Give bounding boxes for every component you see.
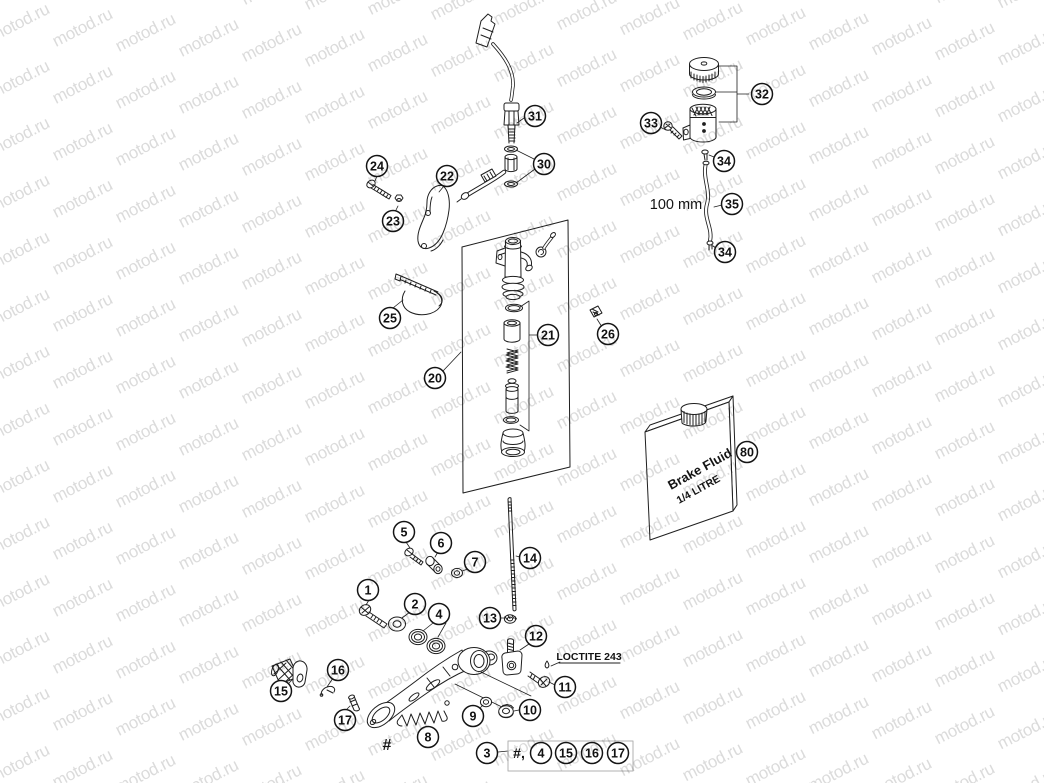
watermark-text: motod.ru bbox=[742, 231, 808, 277]
brake-light-switch-drawing bbox=[457, 14, 519, 202]
watermark-text: motod.ru bbox=[301, 766, 367, 783]
svg-text:32: 32 bbox=[755, 87, 769, 101]
svg-text:26: 26 bbox=[601, 327, 615, 341]
watermark-text: motod.ru bbox=[994, 593, 1044, 639]
watermark-text: motod.ru bbox=[175, 527, 241, 573]
watermark-text: motod.ru bbox=[742, 174, 808, 220]
watermark-text: motod.ru bbox=[994, 137, 1044, 183]
callout-13: 13 bbox=[480, 608, 501, 629]
watermark-text: motod.ru bbox=[301, 139, 367, 185]
watermark-text: motod.ru bbox=[0, 56, 52, 102]
watermark-text: motod.ru bbox=[805, 521, 871, 567]
watermark-text: motod.ru bbox=[175, 299, 241, 345]
watermark-text: motod.ru bbox=[112, 522, 178, 568]
watermark-text: motod.ru bbox=[364, 372, 430, 418]
bolt-nut-drawing bbox=[365, 179, 403, 202]
svg-text:15: 15 bbox=[559, 746, 573, 760]
watermark-text: motod.ru bbox=[616, 335, 682, 381]
watermark-text: motod.ru bbox=[805, 65, 871, 111]
watermark-text: motod.ru bbox=[175, 755, 241, 783]
callout-16: 16 bbox=[328, 660, 349, 681]
callout-34: 34 bbox=[715, 242, 736, 263]
watermark-text: motod.ru bbox=[301, 25, 367, 71]
callout-21: 21 bbox=[538, 325, 559, 346]
watermark-text: motod.ru bbox=[616, 221, 682, 267]
watermark-text: motod.ru bbox=[0, 170, 52, 216]
watermark-text: motod.ru bbox=[238, 247, 304, 293]
watermark-text: motod.ru bbox=[301, 709, 367, 755]
watermark-text: motod.ru bbox=[175, 185, 241, 231]
svg-text:12: 12 bbox=[529, 629, 543, 643]
svg-text:3: 3 bbox=[484, 746, 491, 760]
svg-text:2: 2 bbox=[412, 597, 419, 611]
callout-1: 1 bbox=[358, 580, 379, 601]
svg-text:15: 15 bbox=[274, 684, 288, 698]
watermark-text: motod.ru bbox=[868, 355, 934, 401]
watermark-text: motod.ru bbox=[112, 465, 178, 511]
watermark-text: motod.ru bbox=[868, 0, 934, 2]
watermark-text: motod.ru bbox=[742, 687, 808, 733]
watermark-text: motod.ru bbox=[616, 677, 682, 723]
svg-text:5: 5 bbox=[401, 525, 408, 539]
svg-text:23: 23 bbox=[386, 214, 400, 228]
watermark-text: motod.ru bbox=[49, 403, 115, 449]
watermark-text: motod.ru bbox=[427, 491, 493, 537]
watermark-text: motod.ru bbox=[742, 345, 808, 391]
watermark-text: motod.ru bbox=[805, 635, 871, 681]
callout-30: 30 bbox=[534, 154, 555, 175]
watermark-text: motod.ru bbox=[0, 341, 52, 387]
line-art bbox=[270, 14, 749, 771]
watermark-text: motod.ru bbox=[364, 771, 430, 783]
watermark-text: motod.ru bbox=[175, 14, 241, 60]
watermark-text: motod.ru bbox=[301, 253, 367, 299]
watermark-text: motod.ru bbox=[931, 417, 997, 463]
watermark-text: motod.ru bbox=[364, 429, 430, 475]
watermark-text: motod.ru bbox=[238, 190, 304, 236]
svg-text:17: 17 bbox=[611, 746, 625, 760]
watermark-text: motod.ru bbox=[175, 128, 241, 174]
watermark-text: motod.ru bbox=[931, 18, 997, 64]
watermark-text: motod.ru bbox=[301, 82, 367, 128]
callout-10: 10 bbox=[520, 700, 541, 721]
screw-bushing-washer-drawing bbox=[403, 547, 462, 578]
footnote-prefix: #, bbox=[513, 745, 525, 761]
watermark-text: motod.ru bbox=[931, 75, 997, 121]
watermark-text: motod.ru bbox=[112, 180, 178, 226]
watermark-text: motod.ru bbox=[994, 23, 1044, 69]
watermark-text: motod.ru bbox=[805, 350, 871, 396]
callout-34: 34 bbox=[714, 151, 735, 172]
watermark-text: motod.ru bbox=[238, 133, 304, 179]
watermark-text: motod.ru bbox=[805, 293, 871, 339]
watermark-layer: motod.rumotod.rumotod.rumotod.rumotod.ru… bbox=[0, 0, 1044, 783]
watermark-text: motod.ru bbox=[49, 745, 115, 783]
svg-text:22: 22 bbox=[440, 169, 454, 183]
svg-text:20: 20 bbox=[428, 371, 442, 385]
watermark-text: motod.ru bbox=[364, 30, 430, 76]
callout-35: 35 bbox=[722, 194, 743, 215]
watermark-text: motod.ru bbox=[553, 0, 619, 34]
watermark-text: motod.ru bbox=[112, 636, 178, 682]
watermark-text: motod.ru bbox=[679, 568, 745, 614]
watermark-text: motod.ru bbox=[742, 459, 808, 505]
watermark-text: motod.ru bbox=[994, 764, 1044, 783]
watermark-text: motod.ru bbox=[427, 434, 493, 480]
callout-33: 33 bbox=[641, 113, 662, 134]
svg-text:25: 25 bbox=[383, 311, 397, 325]
watermark-text: motod.ru bbox=[112, 408, 178, 454]
watermark-text: motod.ru bbox=[364, 0, 430, 19]
watermark-text: motod.ru bbox=[49, 460, 115, 506]
svg-text:4: 4 bbox=[436, 607, 443, 621]
svg-text:14: 14 bbox=[523, 551, 537, 565]
svg-text:21: 21 bbox=[541, 328, 555, 342]
watermark-text: motod.ru bbox=[238, 532, 304, 578]
watermark-text: motod.ru bbox=[742, 573, 808, 619]
watermark-text: motod.ru bbox=[931, 759, 997, 783]
watermark-text: motod.ru bbox=[805, 179, 871, 225]
svg-text:11: 11 bbox=[558, 680, 571, 694]
callout-16: 16 bbox=[582, 743, 603, 764]
svg-text:24: 24 bbox=[370, 159, 384, 173]
watermark-text: motod.ru bbox=[0, 113, 52, 159]
svg-text:16: 16 bbox=[585, 746, 599, 760]
watermark-text: motod.ru bbox=[742, 744, 808, 783]
watermark-text: motod.ru bbox=[742, 402, 808, 448]
callout-20: 20 bbox=[425, 368, 446, 389]
watermark-text: motod.ru bbox=[49, 118, 115, 164]
watermark-text: motod.ru bbox=[427, 776, 493, 783]
watermark-text: motod.ru bbox=[112, 693, 178, 739]
callout-32: 32 bbox=[752, 84, 773, 105]
watermark-text: motod.ru bbox=[553, 501, 619, 547]
watermark-text: motod.ru bbox=[175, 470, 241, 516]
watermark-text: motod.ru bbox=[553, 558, 619, 604]
watermark-text: motod.ru bbox=[868, 298, 934, 344]
watermark-text: motod.ru bbox=[49, 175, 115, 221]
callout-4: 4 bbox=[429, 604, 450, 625]
watermark-text: motod.ru bbox=[805, 464, 871, 510]
watermark-text: motod.ru bbox=[868, 70, 934, 116]
cable-tie-drawing bbox=[395, 274, 442, 315]
callout-4: 4 bbox=[531, 743, 552, 764]
watermark-text: motod.ru bbox=[742, 516, 808, 562]
watermark-text: motod.ru bbox=[994, 0, 1044, 12]
watermark-text: motod.ru bbox=[679, 682, 745, 728]
watermark-text: motod.ru bbox=[301, 367, 367, 413]
watermark-text: motod.ru bbox=[994, 251, 1044, 297]
watermark-text: motod.ru bbox=[931, 474, 997, 520]
watermark-text: motod.ru bbox=[301, 595, 367, 641]
watermark-text: motod.ru bbox=[238, 589, 304, 635]
callout-17: 17 bbox=[335, 710, 356, 731]
watermark-text: motod.ru bbox=[805, 236, 871, 282]
watermark-text: motod.ru bbox=[112, 750, 178, 783]
watermark-text: motod.ru bbox=[553, 273, 619, 319]
svg-text:4: 4 bbox=[538, 746, 545, 760]
watermark-text: motod.ru bbox=[0, 284, 52, 330]
watermark-text: motod.ru bbox=[175, 71, 241, 117]
watermark-text: motod.ru bbox=[742, 3, 808, 49]
watermark-text: motod.ru bbox=[490, 97, 556, 143]
svg-text:13: 13 bbox=[483, 611, 497, 625]
watermark-text: motod.ru bbox=[868, 184, 934, 230]
watermark-text: motod.ru bbox=[805, 692, 871, 738]
watermark-text: motod.ru bbox=[427, 263, 493, 309]
watermark-text: motod.ru bbox=[175, 0, 241, 4]
watermark-text: motod.ru bbox=[49, 688, 115, 734]
watermark-text: motod.ru bbox=[301, 481, 367, 527]
watermark-text: motod.ru bbox=[238, 0, 304, 9]
watermark-text: motod.ru bbox=[805, 578, 871, 624]
parts-diagram-page: 3130222423252021263233343534801456712413… bbox=[0, 0, 1044, 783]
watermark-text: motod.ru bbox=[805, 749, 871, 783]
watermark-text: motod.ru bbox=[301, 424, 367, 470]
watermark-text: motod.ru bbox=[0, 398, 52, 444]
watermark-text: motod.ru bbox=[994, 536, 1044, 582]
master-cylinder-drawing bbox=[496, 232, 556, 300]
callout-26: 26 bbox=[598, 324, 619, 345]
repair-kit-drawing bbox=[501, 301, 537, 457]
watermark-text: motod.ru bbox=[301, 538, 367, 584]
watermark-text: motod.ru bbox=[238, 760, 304, 783]
watermark-text: motod.ru bbox=[868, 13, 934, 59]
watermark-text: motod.ru bbox=[0, 569, 52, 615]
watermark-text: motod.ru bbox=[868, 241, 934, 287]
watermark-text: motod.ru bbox=[112, 9, 178, 55]
watermark-text: motod.ru bbox=[931, 0, 997, 7]
watermark-text: motod.ru bbox=[679, 283, 745, 329]
svg-text:34: 34 bbox=[717, 154, 731, 168]
watermark-text: motod.ru bbox=[553, 387, 619, 433]
callout-11: 11 bbox=[555, 677, 576, 698]
watermark-text: motod.ru bbox=[0, 512, 52, 558]
watermark-text: motod.ru bbox=[238, 703, 304, 749]
loctite-label: LOCTITE 243 bbox=[556, 651, 622, 663]
callout-12: 12 bbox=[526, 626, 547, 647]
watermark-text: motod.ru bbox=[301, 196, 367, 242]
watermark-text: motod.ru bbox=[805, 8, 871, 54]
callout-15: 15 bbox=[556, 743, 577, 764]
watermark-text: motod.ru bbox=[49, 574, 115, 620]
watermark-text: motod.ru bbox=[490, 40, 556, 86]
svg-text:7: 7 bbox=[472, 555, 479, 569]
watermark-text: motod.ru bbox=[0, 740, 52, 783]
watermark-text: motod.ru bbox=[868, 583, 934, 629]
callout-15: 15 bbox=[271, 681, 292, 702]
svg-text:9: 9 bbox=[470, 709, 477, 723]
watermark-text: motod.ru bbox=[616, 563, 682, 609]
watermark-text: motod.ru bbox=[931, 588, 997, 634]
watermark-text: motod.ru bbox=[49, 346, 115, 392]
svg-text:35: 35 bbox=[725, 197, 739, 211]
callout-23: 23 bbox=[383, 211, 404, 232]
svg-text:10: 10 bbox=[523, 703, 537, 717]
watermark-text: motod.ru bbox=[49, 631, 115, 677]
watermark-text: motod.ru bbox=[364, 87, 430, 133]
watermark-text: motod.ru bbox=[994, 194, 1044, 240]
watermark-text: motod.ru bbox=[238, 475, 304, 521]
watermark-text: motod.ru bbox=[994, 650, 1044, 696]
watermark-text: motod.ru bbox=[553, 102, 619, 148]
watermark-text: motod.ru bbox=[49, 289, 115, 335]
watermark-text: motod.ru bbox=[427, 92, 493, 138]
watermark-text: motod.ru bbox=[931, 303, 997, 349]
watermark-text: motod.ru bbox=[616, 50, 682, 96]
watermark-text: motod.ru bbox=[175, 242, 241, 288]
watermark-text: motod.ru bbox=[0, 626, 52, 672]
watermark-text: motod.ru bbox=[805, 407, 871, 453]
callout-9: 9 bbox=[463, 706, 484, 727]
svg-text:34: 34 bbox=[718, 245, 732, 259]
watermark-text: motod.ru bbox=[553, 45, 619, 91]
watermark-text: motod.ru bbox=[112, 351, 178, 397]
callout-31: 31 bbox=[525, 106, 546, 127]
watermark-text: motod.ru bbox=[112, 123, 178, 169]
watermark-text: motod.ru bbox=[994, 365, 1044, 411]
watermark-text: motod.ru bbox=[868, 127, 934, 173]
hose-length-label: 100 mm bbox=[650, 197, 702, 213]
watermark-text: motod.ru bbox=[616, 278, 682, 324]
watermark-text: motod.ru bbox=[301, 310, 367, 356]
watermark-text: motod.ru bbox=[742, 288, 808, 334]
watermark-text: motod.ru bbox=[0, 227, 52, 273]
watermark-text: motod.ru bbox=[616, 0, 682, 39]
watermark-text: motod.ru bbox=[931, 645, 997, 691]
watermark-text: motod.ru bbox=[553, 216, 619, 262]
watermark-text: motod.ru bbox=[112, 579, 178, 625]
watermark-text: motod.ru bbox=[868, 469, 934, 515]
watermark-text: motod.ru bbox=[931, 132, 997, 178]
watermark-text: motod.ru bbox=[931, 189, 997, 235]
watermark-text: motod.ru bbox=[490, 268, 556, 314]
callout-14: 14 bbox=[520, 548, 541, 569]
watermark-text: motod.ru bbox=[868, 526, 934, 572]
watermark-text: motod.ru bbox=[0, 455, 52, 501]
watermark-text: motod.ru bbox=[175, 356, 241, 402]
watermark-text: motod.ru bbox=[931, 360, 997, 406]
watermark-text: motod.ru bbox=[868, 697, 934, 743]
svg-text:1: 1 bbox=[365, 583, 372, 597]
watermark-text: motod.ru bbox=[175, 584, 241, 630]
watermark-text: motod.ru bbox=[49, 4, 115, 50]
watermark-text: motod.ru bbox=[112, 237, 178, 283]
watermark-text: motod.ru bbox=[994, 308, 1044, 354]
callout-2: 2 bbox=[405, 594, 426, 615]
svg-text:8: 8 bbox=[425, 730, 432, 744]
watermark-text: motod.ru bbox=[994, 479, 1044, 525]
watermark-text: motod.ru bbox=[931, 702, 997, 748]
watermark-text: motod.ru bbox=[805, 122, 871, 168]
svg-text:80: 80 bbox=[740, 445, 754, 459]
callout-22: 22 bbox=[437, 166, 458, 187]
watermark-text: motod.ru bbox=[238, 76, 304, 122]
watermark-text: motod.ru bbox=[238, 304, 304, 350]
watermark-text: motod.ru bbox=[364, 258, 430, 304]
protection-cover-drawing bbox=[418, 185, 450, 251]
watermark-text: motod.ru bbox=[238, 19, 304, 65]
watermark-text: motod.ru bbox=[679, 739, 745, 783]
watermark-text: motod.ru bbox=[931, 246, 997, 292]
clip-drawing bbox=[590, 306, 602, 317]
svg-text:17: 17 bbox=[338, 713, 352, 727]
rear-brake-parts-diagram: 3130222423252021263233343534801456712413… bbox=[0, 0, 1044, 783]
pedal-hash-label: # bbox=[383, 737, 392, 754]
watermark-text: motod.ru bbox=[553, 159, 619, 205]
callout-24: 24 bbox=[367, 156, 388, 177]
callout-80: 80 bbox=[737, 442, 758, 463]
watermark-text: motod.ru bbox=[238, 418, 304, 464]
push-rod-drawing bbox=[508, 498, 516, 611]
watermark-text: motod.ru bbox=[994, 422, 1044, 468]
callout-25: 25 bbox=[380, 308, 401, 329]
watermark-text: motod.ru bbox=[679, 340, 745, 386]
watermark-text: motod.ru bbox=[490, 496, 556, 542]
watermark-text: motod.ru bbox=[490, 0, 556, 29]
watermark-text: motod.ru bbox=[175, 698, 241, 744]
watermark-text: motod.ru bbox=[553, 444, 619, 490]
watermark-text: motod.ru bbox=[679, 0, 745, 44]
watermark-text: motod.ru bbox=[238, 361, 304, 407]
watermark-text: motod.ru bbox=[49, 517, 115, 563]
watermark-text: motod.ru bbox=[0, 683, 52, 729]
watermark-text: motod.ru bbox=[0, 0, 52, 46]
svg-text:6: 6 bbox=[438, 536, 445, 550]
svg-text:16: 16 bbox=[331, 663, 345, 677]
callout-6: 6 bbox=[431, 533, 452, 554]
callout-5: 5 bbox=[394, 522, 415, 543]
watermark-text: motod.ru bbox=[931, 531, 997, 577]
watermark-text: motod.ru bbox=[994, 80, 1044, 126]
watermark-text: motod.ru bbox=[175, 413, 241, 459]
watermark-text: motod.ru bbox=[49, 61, 115, 107]
watermark-text: motod.ru bbox=[616, 620, 682, 666]
svg-text:33: 33 bbox=[644, 116, 658, 130]
watermark-text: motod.ru bbox=[112, 294, 178, 340]
watermark-text: motod.ru bbox=[742, 117, 808, 163]
svg-text:30: 30 bbox=[537, 157, 551, 171]
svg-text:31: 31 bbox=[528, 109, 542, 123]
reservoir-drawing bbox=[664, 58, 749, 251]
watermark-text: motod.ru bbox=[112, 66, 178, 112]
watermark-text: motod.ru bbox=[868, 412, 934, 458]
watermark-text: motod.ru bbox=[427, 320, 493, 366]
callout-3: 3 bbox=[477, 743, 498, 764]
watermark-text: motod.ru bbox=[679, 625, 745, 671]
watermark-text: motod.ru bbox=[742, 630, 808, 676]
watermark-text: motod.ru bbox=[490, 382, 556, 428]
callout-17: 17 bbox=[608, 743, 629, 764]
callout-7: 7 bbox=[465, 552, 486, 573]
watermark-text: motod.ru bbox=[175, 641, 241, 687]
watermark-text: motod.ru bbox=[868, 754, 934, 783]
watermark-text: motod.ru bbox=[868, 640, 934, 686]
watermark-text: motod.ru bbox=[49, 232, 115, 278]
callout-8: 8 bbox=[418, 727, 439, 748]
watermark-text: motod.ru bbox=[994, 707, 1044, 753]
watermark-text: motod.ru bbox=[301, 0, 367, 14]
